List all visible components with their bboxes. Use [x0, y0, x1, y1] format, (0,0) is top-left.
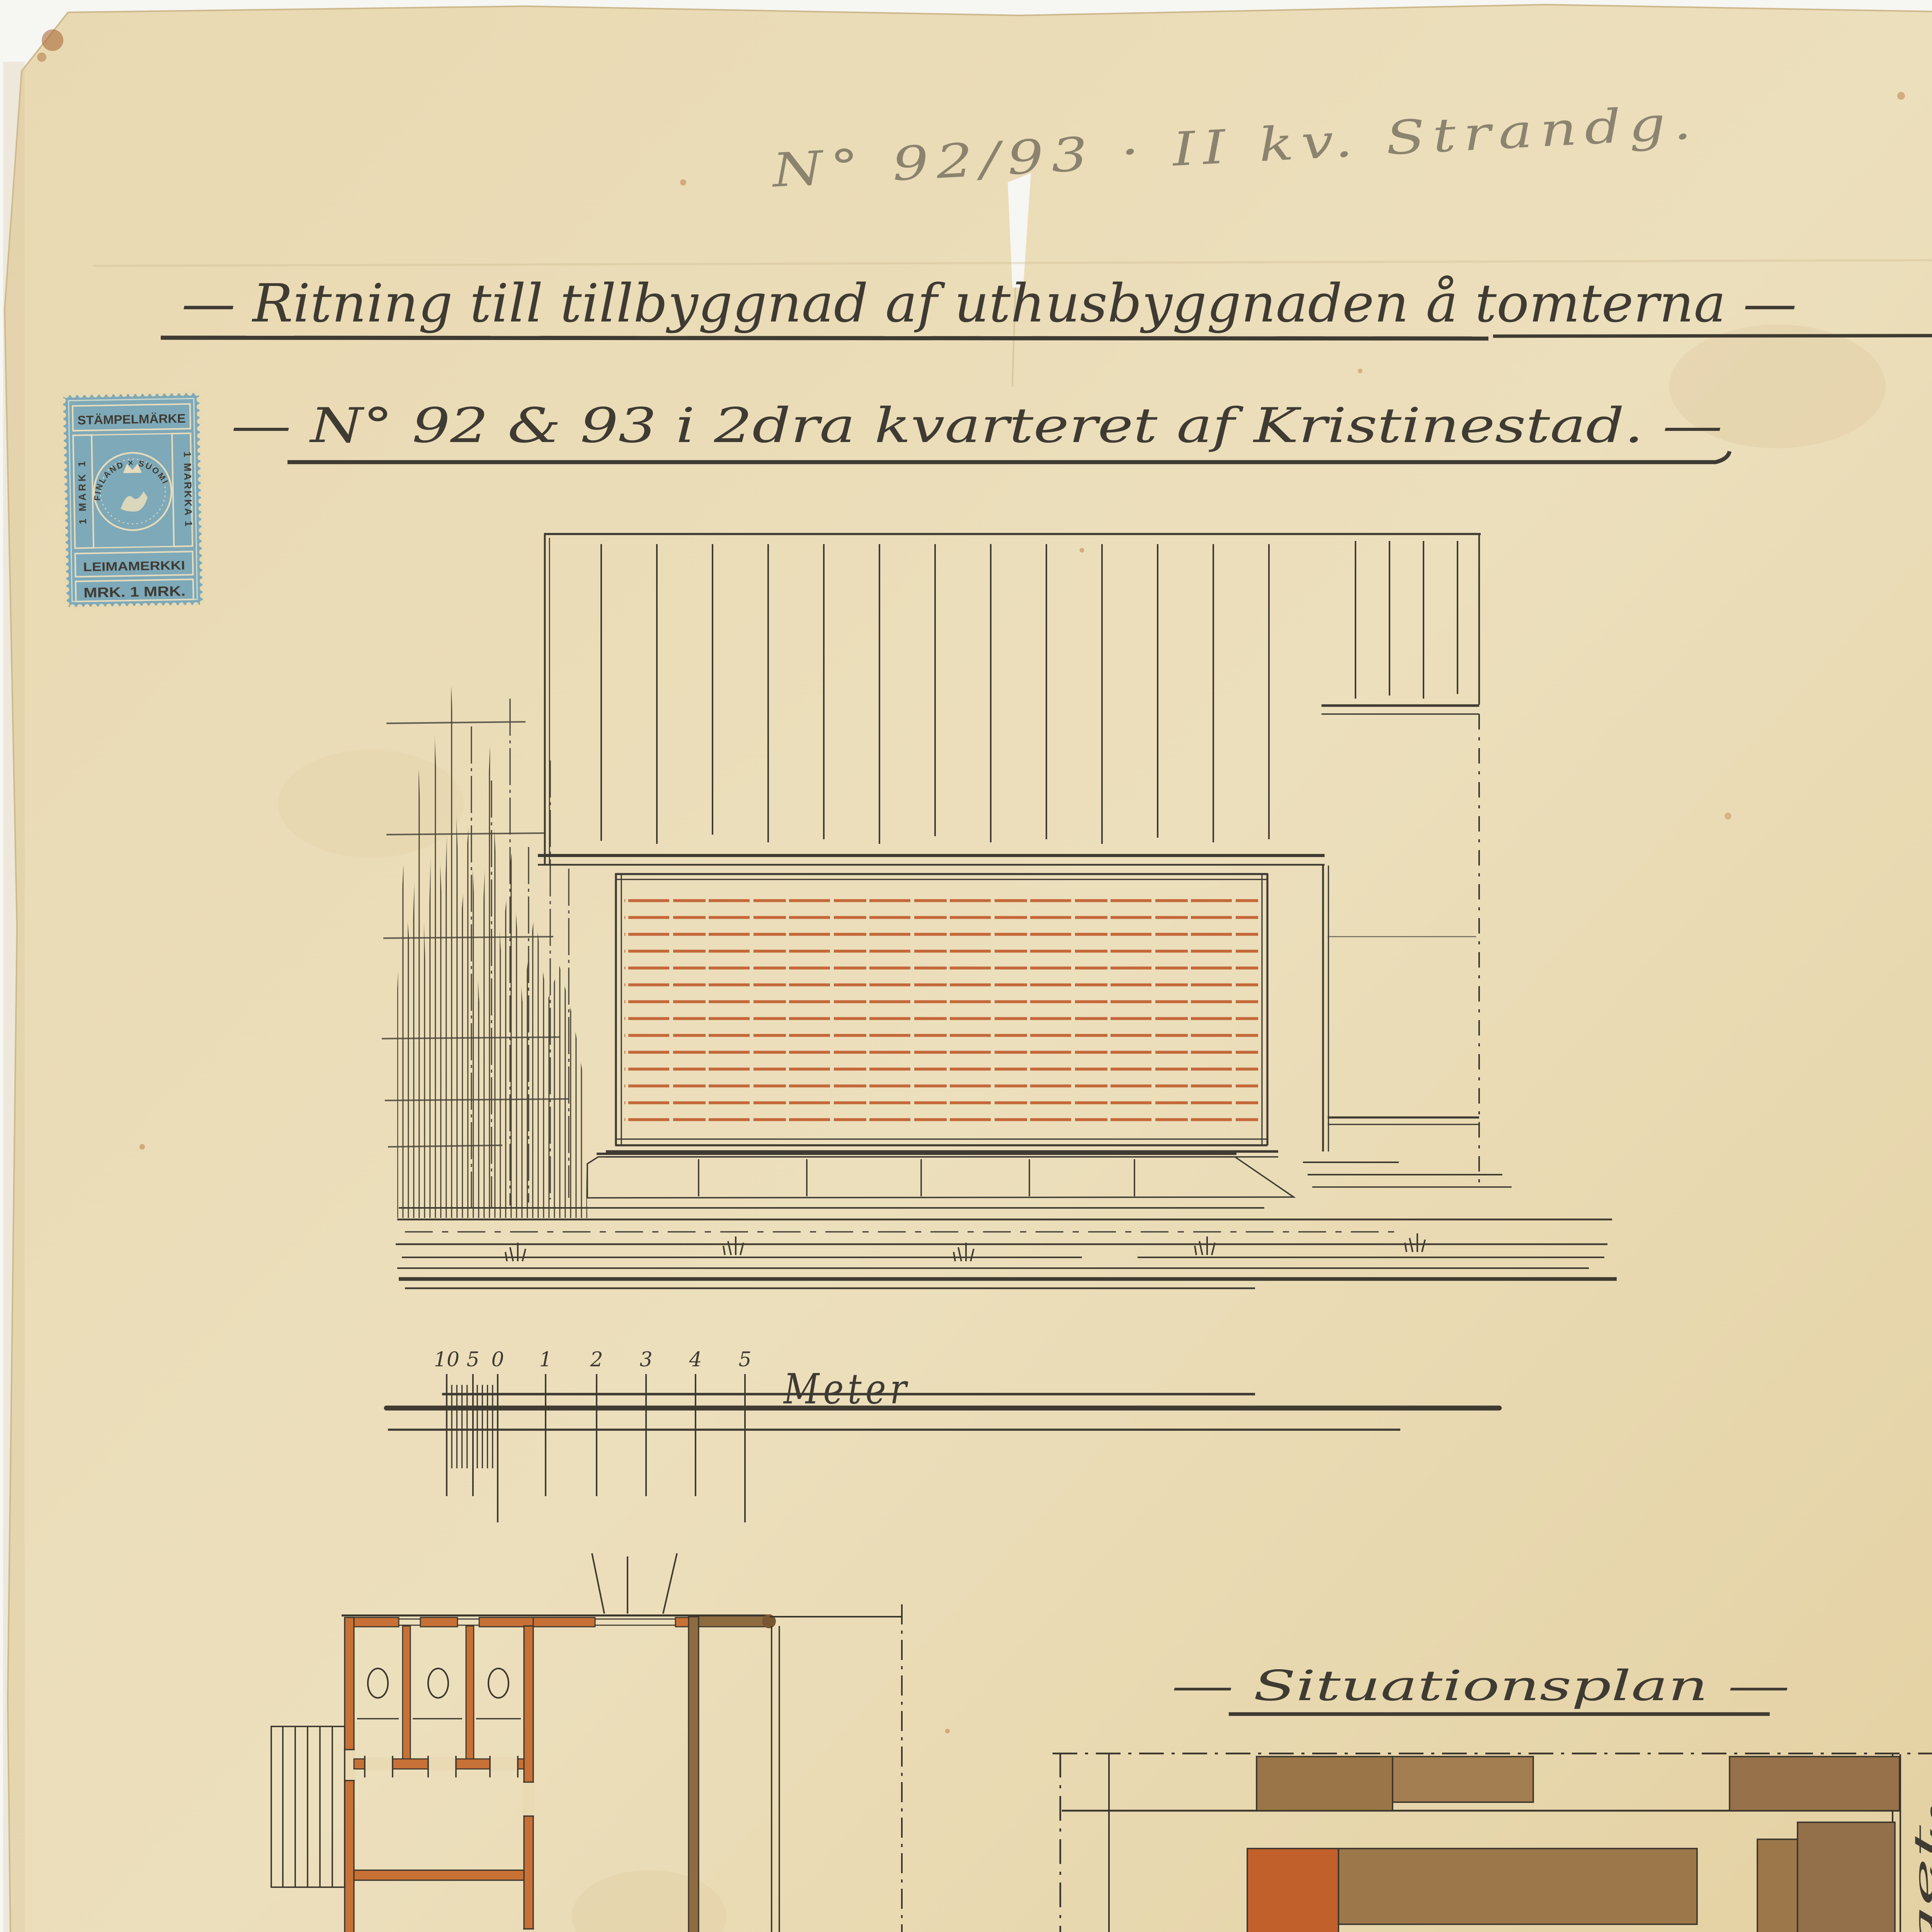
- building-north-1: [1257, 1757, 1393, 1811]
- situation-plan-title: — Situationsplan —: [1172, 1662, 1790, 1710]
- title-line-2: — N° 92 & 93 i 2dra kvarteret af Kristin…: [231, 398, 1723, 454]
- scale-tick-label: 2: [590, 1348, 603, 1371]
- scale-tick-label: 3: [639, 1348, 652, 1371]
- title-underline-1b: [1493, 335, 1932, 336]
- scale-tick-label: 5: [466, 1348, 479, 1371]
- stamp-left-band: 1 MARK 1: [76, 459, 88, 524]
- building-north-2: [1393, 1757, 1533, 1802]
- stamp-value-overprint: MRK. 1 MRK.: [83, 583, 186, 601]
- square-name-label: Salutorget.: [1908, 1799, 1932, 1932]
- title-line-1: — Ritning till tillbyggnad af uthusbyggn…: [182, 273, 1797, 334]
- existing-wall-segment: [689, 1616, 768, 1627]
- scale-tick-label: 10: [434, 1348, 459, 1371]
- scale-tick-label: 5: [738, 1348, 751, 1371]
- scale-tick-label: 1: [539, 1348, 552, 1371]
- stamp-middle-band: LEIMAMERKKI: [83, 558, 185, 574]
- building-east-strip: [1757, 1839, 1798, 1932]
- scale-tick-label: 0: [491, 1348, 504, 1371]
- stamp-header: STÄMPELMÄRKE: [77, 412, 186, 427]
- plan-right-wall-existing: [689, 1617, 699, 1932]
- existing-outbuilding: [1338, 1849, 1697, 1924]
- scale-unit-label: Meter: [783, 1365, 910, 1413]
- title-underline-1a: [161, 338, 1488, 338]
- new-addition-red-panel: [615, 873, 1267, 1145]
- new-outbuilding-orange: [1247, 1849, 1338, 1932]
- building-north-3: [1730, 1757, 1900, 1811]
- revenue-stamp: STÄMPELMÄRKE 1 MARK 1 1 MARKKA 1 FINLAND…: [63, 393, 203, 607]
- scale-tick-label: 4: [689, 1348, 702, 1371]
- building-east-tall: [1798, 1822, 1895, 1932]
- drawing-canvas: N° 92/93 · II kv. Strandg. — Ritning til…: [0, 0, 1932, 1932]
- stamp-right-band: 1 MARKKA 1: [182, 451, 194, 528]
- scanned-drawing-sheet: N° 92/93 · II kv. Strandg. — Ritning til…: [0, 0, 1932, 1932]
